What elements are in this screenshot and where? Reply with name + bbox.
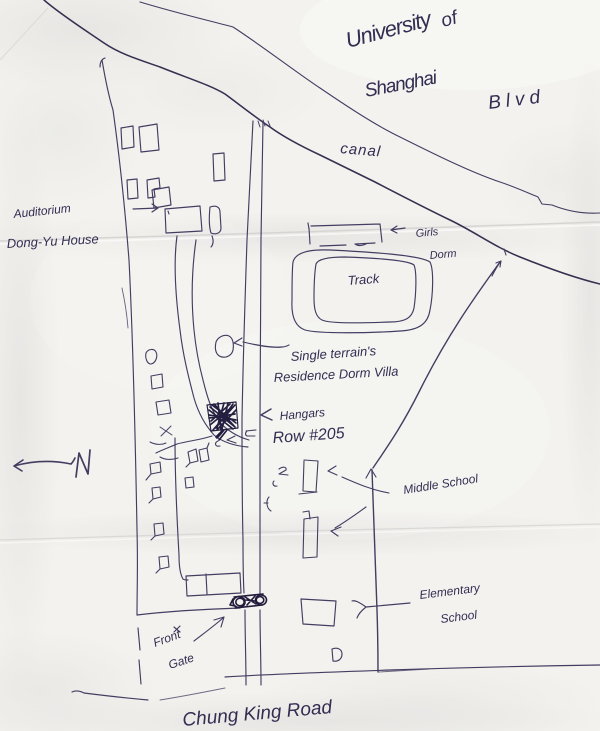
svg-text:Track: Track — [347, 271, 381, 288]
svg-text:Dorm: Dorm — [429, 248, 457, 262]
svg-text:Girls: Girls — [415, 226, 439, 240]
svg-text:canal: canal — [340, 140, 382, 160]
